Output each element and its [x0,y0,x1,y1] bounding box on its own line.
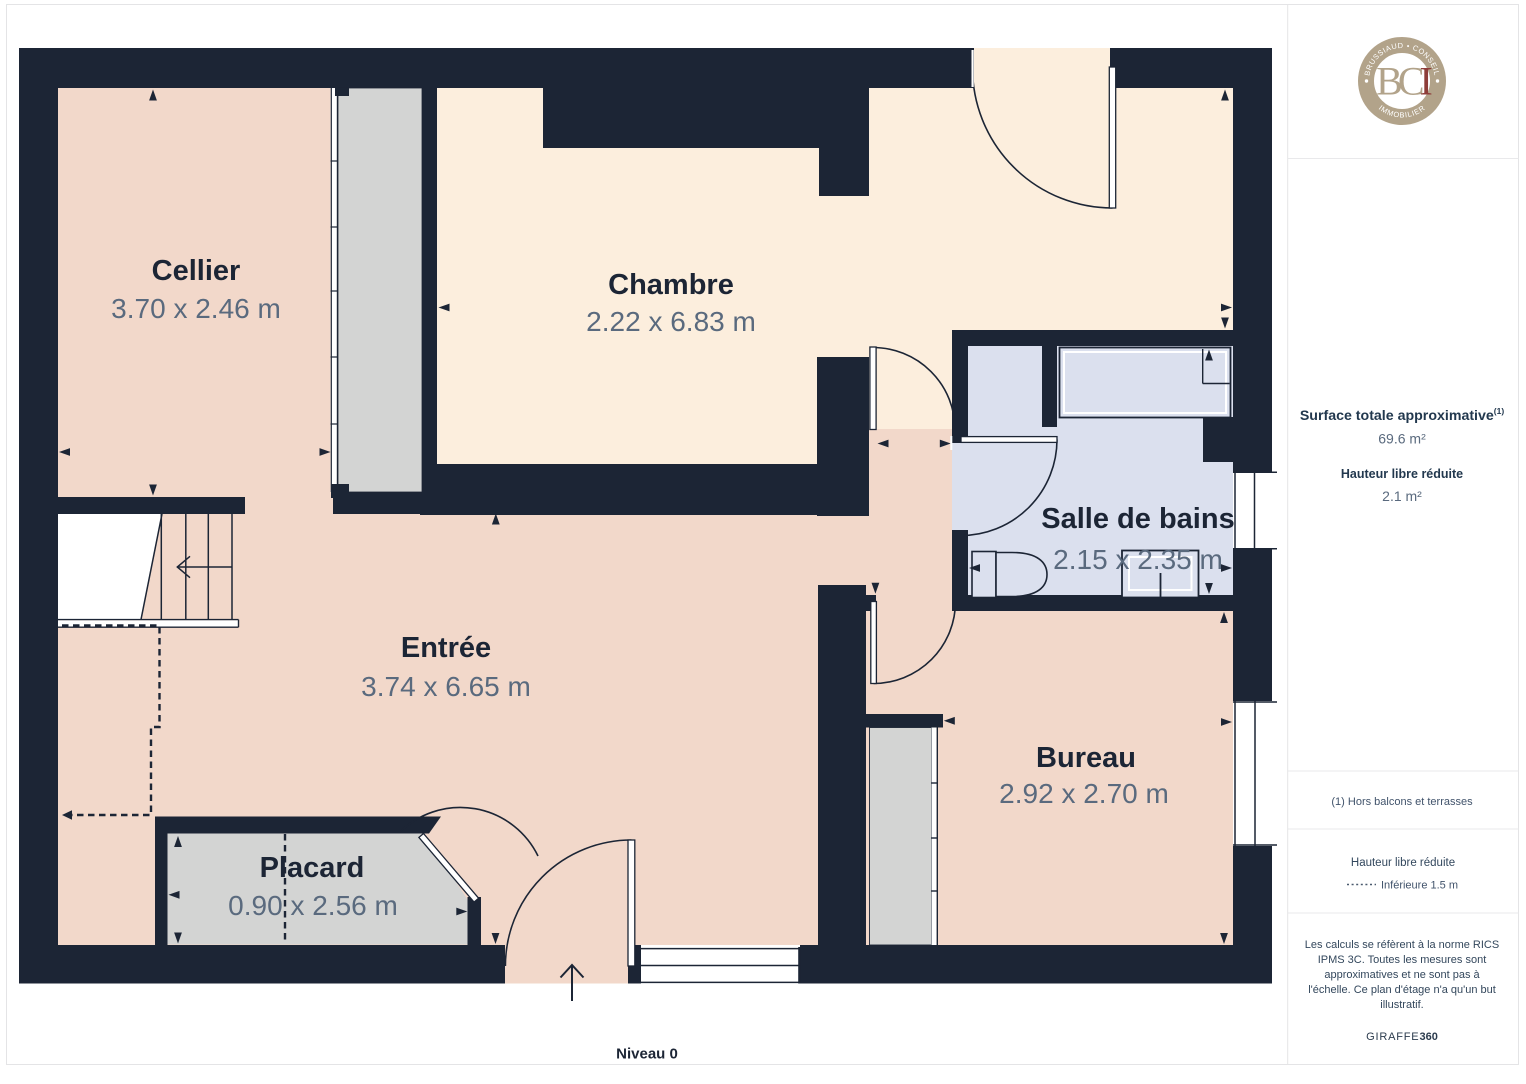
svg-text:Hauteur libre réduite: Hauteur libre réduite [1341,467,1463,481]
svg-text:0.90 x 2.56 m: 0.90 x 2.56 m [228,890,398,921]
svg-text:3.70 x 2.46 m: 3.70 x 2.46 m [111,293,281,324]
svg-text:Salle de bains: Salle de bains [1041,503,1234,535]
svg-text:Inférieure 1.5 m: Inférieure 1.5 m [1381,880,1458,892]
svg-text:approximatives et ne sont pas: approximatives et ne sont pas à [1324,969,1480,981]
svg-text:2.92 x 2.70 m: 2.92 x 2.70 m [999,778,1169,809]
svg-text:Les calculs se réfèrent à la n: Les calculs se réfèrent à la norme RICS [1305,939,1499,951]
svg-text:BCI: BCI [1376,59,1431,104]
svg-text:illustratif.: illustratif. [1380,999,1423,1011]
svg-text:Chambre: Chambre [608,269,734,301]
svg-text:Bureau: Bureau [1036,742,1136,774]
svg-text:2.22 x 6.83 m: 2.22 x 6.83 m [586,306,756,337]
svg-text:Entrée: Entrée [401,632,491,664]
svg-text:Placard: Placard [260,852,365,884]
svg-text:l'échelle. Ce plan d'étage n'a: l'échelle. Ce plan d'étage n'a qu'un but [1308,984,1496,996]
svg-text:Hauteur libre réduite: Hauteur libre réduite [1351,857,1455,869]
svg-text:(1) Hors balcons et terrasses: (1) Hors balcons et terrasses [1331,796,1473,808]
svg-text:Surface totale approximative(1: Surface totale approximative(1) [1300,406,1505,424]
svg-text:2.15 x 2.35 m: 2.15 x 2.35 m [1053,544,1223,575]
svg-text:69.6 m²: 69.6 m² [1378,431,1426,447]
svg-text:2.1 m²: 2.1 m² [1382,488,1422,504]
svg-text:Cellier: Cellier [152,255,241,287]
svg-text:3.74 x 6.65 m: 3.74 x 6.65 m [361,671,531,702]
svg-text:GIRAFFE360: GIRAFFE360 [1366,1031,1438,1043]
svg-text:Niveau 0: Niveau 0 [616,1046,678,1063]
svg-text:IPMS 3C. Toutes les mesures so: IPMS 3C. Toutes les mesures sont [1318,954,1487,966]
